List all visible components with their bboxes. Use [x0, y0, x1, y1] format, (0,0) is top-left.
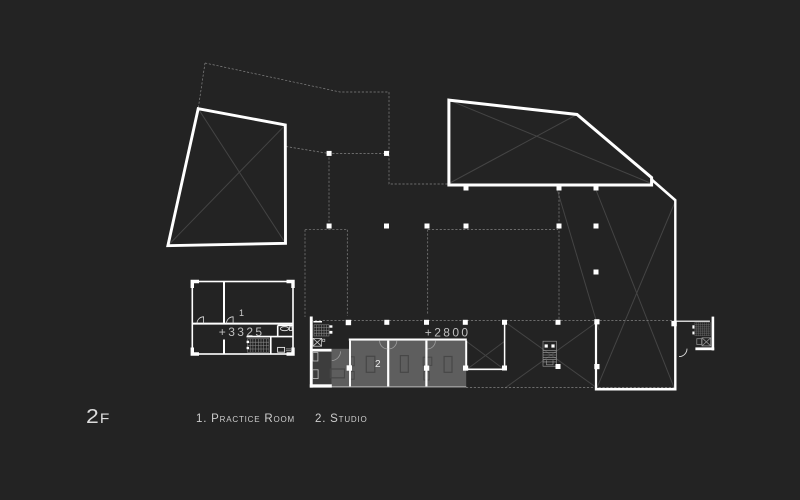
- svg-text:2. Studio: 2. Studio: [315, 413, 368, 425]
- svg-text:2: 2: [375, 359, 381, 370]
- svg-text:+2800: +2800: [425, 326, 471, 340]
- svg-text:1: 1: [239, 308, 244, 318]
- svg-text:+3325: +3325: [219, 325, 265, 339]
- svg-text:1. Practice Room: 1. Practice Room: [196, 413, 295, 425]
